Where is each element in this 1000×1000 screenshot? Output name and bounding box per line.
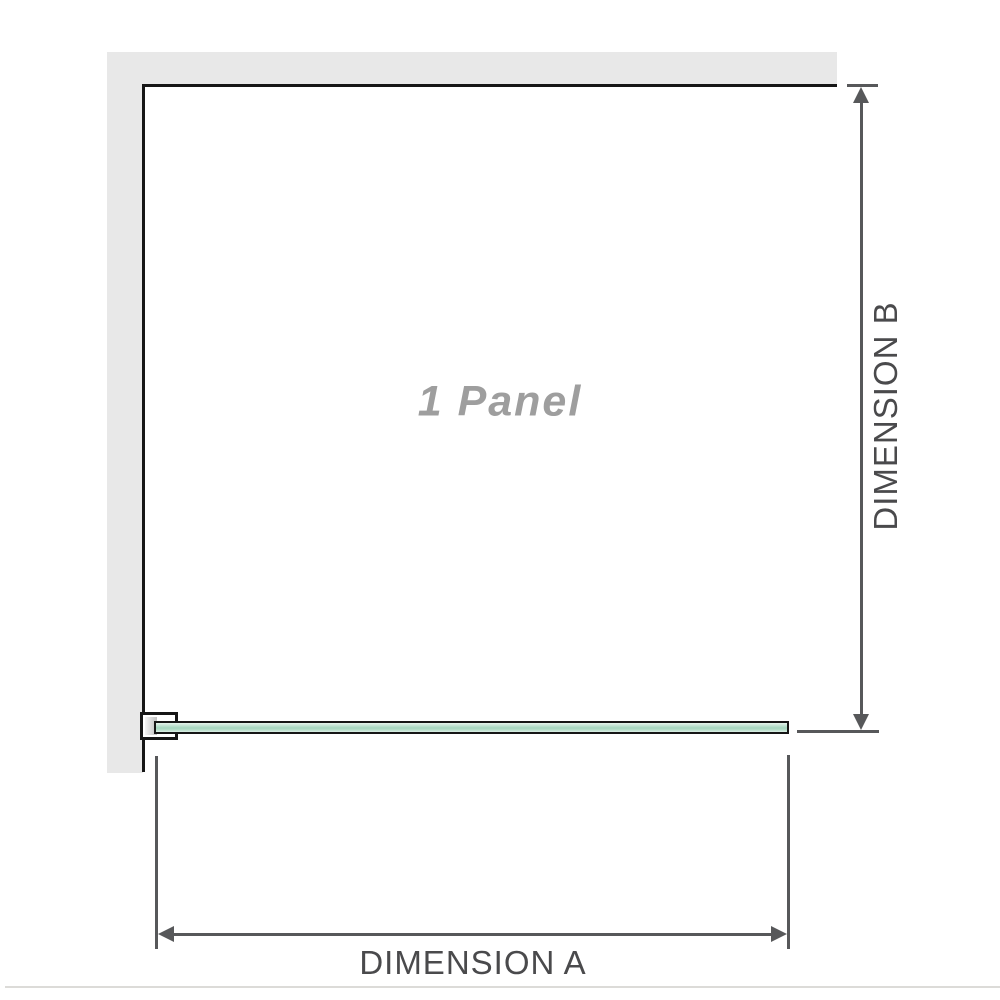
dimension-b-bottom-tick <box>797 730 879 733</box>
arrow-up-icon <box>853 87 869 103</box>
diagram-canvas: 1 Panel DIMENSION B DIMENSION A <box>0 0 1000 1000</box>
glass-panel <box>154 721 789 734</box>
dimension-b-line <box>860 98 863 720</box>
wall-top <box>107 52 837 84</box>
panel-outline-top <box>142 84 837 87</box>
arrow-down-icon <box>853 714 869 730</box>
dimension-a-right-extension <box>787 755 790 949</box>
dimension-a-line <box>170 933 775 936</box>
wall-left <box>107 52 143 773</box>
arrow-left-icon <box>158 926 174 942</box>
panel-outline-left <box>142 84 145 772</box>
arrow-right-icon <box>771 926 787 942</box>
dimension-a-left-extension <box>155 756 158 949</box>
dimension-b-label: DIMENSION B <box>867 301 905 530</box>
dimension-a-label: DIMENSION A <box>359 944 586 982</box>
page-baseline-divider <box>5 986 1000 988</box>
panel-label: 1 Panel <box>418 378 583 427</box>
